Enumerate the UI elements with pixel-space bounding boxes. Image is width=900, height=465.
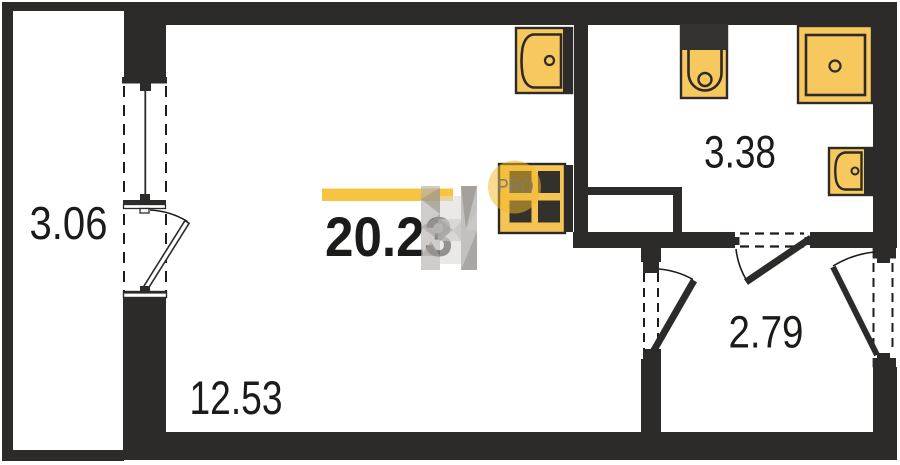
svg-text:PRO: PRO — [498, 176, 534, 198]
svg-text:2.79: 2.79 — [729, 307, 804, 358]
svg-text:3.06: 3.06 — [30, 197, 108, 249]
svg-text:3.38: 3.38 — [704, 127, 776, 178]
svg-text:12.53: 12.53 — [190, 371, 283, 424]
